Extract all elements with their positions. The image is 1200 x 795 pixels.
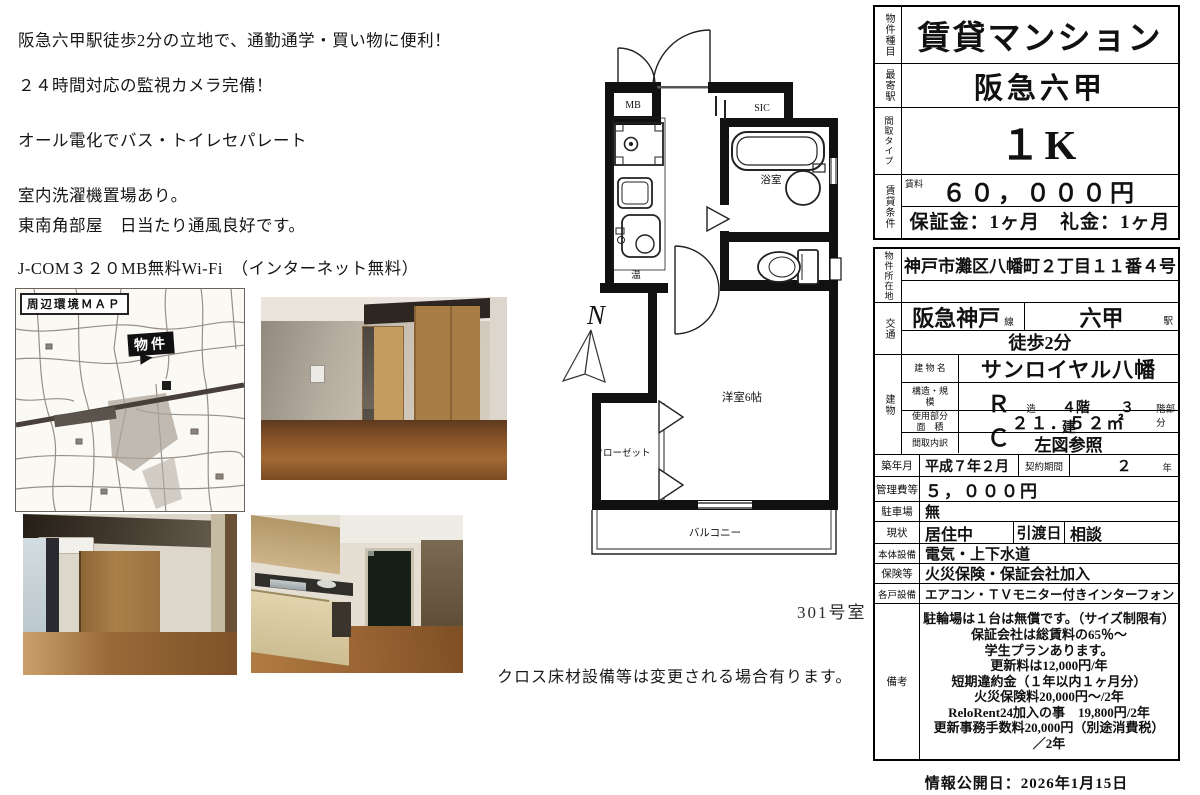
balcony-label: バルコニー bbox=[689, 527, 741, 539]
madori-value: 左図参照 bbox=[959, 433, 1178, 453]
building-label: 建物 bbox=[875, 355, 902, 454]
photo-room-closet bbox=[23, 514, 237, 675]
closet-label: クローゼット bbox=[593, 447, 650, 459]
built-value: 平成７年２月 bbox=[920, 455, 1019, 476]
layout-label: 間取タイプ bbox=[875, 108, 902, 174]
photo-window-pane bbox=[23, 538, 46, 642]
photo-frame-inner bbox=[211, 514, 224, 636]
walls bbox=[592, 82, 838, 510]
contract-value: ２ bbox=[1116, 455, 1131, 476]
structure-label: 構造・規 模 bbox=[902, 383, 959, 410]
sic-label: SIC bbox=[754, 103, 770, 114]
remarks-label: 備考 bbox=[875, 604, 920, 759]
feature-line-6: J-COM３２０MB無料Wi-Fi （インターネット無料） bbox=[18, 255, 419, 279]
feature-line-2: ２４時間対応の監視カメラ完備！ bbox=[18, 72, 273, 96]
structure-cell: ＲＣ 造 ４階建 ３ 階部分 bbox=[959, 383, 1178, 410]
property-type-value: 賃貸マンション bbox=[902, 7, 1178, 63]
north-label: N bbox=[586, 300, 607, 330]
insurance-value: 火災保険・保証会社加入 bbox=[920, 564, 1178, 583]
kitchen-fixtures bbox=[613, 118, 665, 270]
bath-folding-door bbox=[707, 207, 729, 231]
photo-undercounter-gap bbox=[332, 602, 351, 637]
north-arrow-icon bbox=[563, 330, 605, 382]
floor-plan: MB SIC 浴室 bbox=[555, 18, 885, 578]
bathtub bbox=[732, 132, 825, 205]
photo-ceiling bbox=[340, 515, 463, 543]
line-unit: 線 bbox=[1004, 314, 1014, 328]
unit-equip-value: エアコン・ＴＶモニター付きインターフォン bbox=[920, 584, 1178, 603]
photo-closet bbox=[414, 306, 480, 427]
station-cell: 六甲 駅 bbox=[1025, 303, 1178, 330]
room-door bbox=[675, 246, 719, 334]
photo-floor bbox=[23, 632, 237, 675]
base-equip-label: 本体設備 bbox=[875, 544, 920, 563]
remarks-line: 更新料は12,000円/年 bbox=[922, 658, 1176, 674]
handover-value: 相談 bbox=[1065, 522, 1178, 543]
water-heater-label: 温 bbox=[631, 270, 641, 281]
remarks-line: 学生プランあります。 bbox=[922, 643, 1176, 659]
deposit-value: 保証金：1ヶ月 礼金：1ヶ月 bbox=[902, 207, 1178, 234]
row-building: 建物 建 物 名 サンロイヤル八幡 構造・規 模 ＲＣ 造 ４階建 ３ 階部分 bbox=[875, 355, 1178, 455]
row-property-type: 物件種目 賃貸マンション bbox=[875, 7, 1178, 64]
room-number: 301号室 bbox=[797, 598, 867, 623]
terms-label: 賃貸条件 bbox=[875, 175, 902, 238]
contract-cell: ２ 年 bbox=[1070, 455, 1178, 476]
toilet bbox=[758, 250, 818, 284]
row-unit-equip: 各戸設備 エアコン・ＴＶモニター付きインターフォン bbox=[875, 584, 1178, 604]
photo-closet-seam bbox=[79, 551, 81, 641]
row-remarks: 備考 駐輪場は１台は無償です。（サイズ制限有） 保証会社は総賃料の65％〜 学生… bbox=[875, 604, 1178, 759]
rent-label: 賃料 bbox=[905, 177, 923, 190]
photo-room-door bbox=[261, 297, 507, 480]
photo-door-knob bbox=[368, 551, 373, 556]
mgmt-label: 管理費等 bbox=[875, 477, 920, 501]
feature-line-4: 室内洗濯機置場あり。 bbox=[18, 182, 188, 206]
rent-value: ６０，０００円 bbox=[902, 175, 1178, 206]
row-parking: 駐車場 無 bbox=[875, 502, 1178, 522]
contract-unit: 年 bbox=[1162, 460, 1172, 474]
map-shaded-block-2 bbox=[142, 457, 182, 509]
handover-label: 引渡日 bbox=[1014, 522, 1065, 543]
parking-label: 駐車場 bbox=[875, 502, 920, 521]
madori-label: 間取内訳 bbox=[902, 433, 959, 453]
feature-line-5: 東南角部屋 日当たり通風良好です。 bbox=[18, 212, 305, 236]
photo-intercom bbox=[310, 365, 325, 383]
windows bbox=[698, 158, 841, 509]
publish-date: 情報公開日：2026年1月15日 bbox=[873, 772, 1180, 793]
remarks-line: ReloRent24加入の事 19,800円/2年 bbox=[922, 705, 1176, 721]
address-value: 神戸市灘区八幡町２丁目１１番４号 bbox=[902, 249, 1178, 280]
line-name: 阪急神戸 bbox=[912, 301, 1000, 333]
remarks-line: 火災保険料20,000円〜/2年 bbox=[922, 689, 1176, 705]
mgmt-value: ５，０００円 bbox=[920, 477, 1178, 501]
row-built: 築年月 平成７年２月 契約期間 ２ 年 bbox=[875, 455, 1178, 477]
photo-door-glass-left bbox=[363, 327, 374, 409]
map-title: 周辺環境ＭＡＰ bbox=[20, 293, 129, 315]
remarks-line: ／2年 bbox=[922, 736, 1176, 752]
area-value: ２１．５２㎡ bbox=[959, 411, 1178, 432]
remarks-line: 短期違約金（１年以内１ヶ月分） bbox=[922, 674, 1176, 690]
feature-line-1: 阪急六甲駅徒歩2分の立地で、通勤通学・買い物に便利！ bbox=[18, 27, 451, 51]
unit-equip-label: 各戸設備 bbox=[875, 584, 920, 603]
spec-table-top: 物件種目 賃貸マンション 最寄駅 阪急六甲 間取タイプ １K 賃貸条件 賃料 ６… bbox=[873, 5, 1180, 240]
row-insurance: 保険等 火災保険・保証会社加入 bbox=[875, 564, 1178, 584]
sic-sliding-door bbox=[716, 96, 725, 120]
base-equip-value: 電気・上下水道 bbox=[920, 544, 1178, 563]
walk-value: 徒歩2分 bbox=[902, 331, 1178, 353]
station-value: 阪急六甲 bbox=[902, 64, 1178, 107]
layout-value: １K bbox=[902, 108, 1178, 174]
photo-entrance-door bbox=[365, 548, 414, 633]
line-value: 阪急神戸 線 bbox=[902, 303, 1025, 330]
closet-door bbox=[659, 401, 683, 501]
row-transport: 交通 阪急神戸 線 六甲 駅 徒歩2分 bbox=[875, 303, 1178, 355]
parking-value: 無 bbox=[920, 502, 1178, 521]
mb-label: MB bbox=[625, 100, 641, 111]
map-streets bbox=[16, 289, 245, 512]
photo-door bbox=[362, 326, 404, 423]
row-station: 最寄駅 阪急六甲 bbox=[875, 64, 1178, 108]
status-label: 現状 bbox=[875, 522, 920, 543]
change-note: クロス床材設備等は変更される場合有ります。 bbox=[497, 663, 852, 687]
entrance-door-arcs bbox=[618, 30, 710, 87]
map-property-marker: 物件 bbox=[127, 331, 174, 356]
photo-floor bbox=[261, 420, 507, 480]
row-mgmt: 管理費等 ５，０００円 bbox=[875, 477, 1178, 502]
bath-label: 浴室 bbox=[761, 173, 782, 186]
photo-kitchen bbox=[251, 515, 463, 673]
row-base-equip: 本体設備 電気・上下水道 bbox=[875, 544, 1178, 564]
entrance-threshold bbox=[657, 86, 708, 89]
remarks-line: 駐輪場は１台は無償です。（サイズ制限有） bbox=[922, 611, 1176, 627]
station-name: 六甲 bbox=[1079, 301, 1123, 333]
map-station-platform bbox=[53, 407, 116, 428]
contract-label: 契約期間 bbox=[1019, 455, 1070, 476]
row-layout: 間取タイプ １K bbox=[875, 108, 1178, 175]
map-property-dot bbox=[162, 381, 171, 390]
row-status: 現状 居住中 引渡日 相談 bbox=[875, 522, 1178, 544]
address-label: 物件所在地 bbox=[875, 249, 902, 302]
insurance-label: 保険等 bbox=[875, 564, 920, 583]
photo-closet bbox=[79, 551, 160, 641]
spec-table-main: 物件所在地 神戸市灘区八幡町２丁目１１番４号 交通 阪急神戸 線 六甲 bbox=[873, 247, 1180, 761]
feature-line-3: オール電化でバス・トイレセパレート bbox=[18, 127, 307, 151]
transport-label: 交通 bbox=[875, 303, 902, 354]
photo-wall-right bbox=[490, 297, 507, 432]
status-value: 居住中 bbox=[920, 522, 1014, 543]
station-label: 最寄駅 bbox=[875, 64, 902, 107]
flyer-page: 阪急六甲駅徒歩2分の立地で、通勤通学・買い物に便利！ ２４時間対応の監視カメラ完… bbox=[0, 0, 1200, 795]
property-type-label: 物件種目 bbox=[875, 7, 902, 63]
address-empty-row bbox=[902, 281, 1178, 300]
building-name-value: サンロイヤル八幡 bbox=[959, 355, 1178, 382]
room-label: 洋室6帖 bbox=[722, 390, 762, 404]
neighborhood-map: 周辺環境ＭＡＰ 物件 bbox=[15, 288, 245, 512]
area-label: 使用部分 面 積 bbox=[902, 411, 959, 432]
station-unit: 駅 bbox=[1163, 313, 1173, 327]
built-label: 築年月 bbox=[875, 455, 920, 476]
row-terms: 賃貸条件 賃料 ６０，０００円 保証金：1ヶ月 礼金：1ヶ月 bbox=[875, 175, 1178, 238]
building-name-label: 建 物 名 bbox=[902, 355, 959, 382]
remarks-line: 保証会社は総賃料の65％〜 bbox=[922, 627, 1176, 643]
row-address: 物件所在地 神戸市灘区八幡町２丁目１１番４号 bbox=[875, 249, 1178, 303]
photo-upper-cabinet bbox=[251, 515, 340, 575]
remarks-line: 更新事務手数料20,000円（別途消費税） bbox=[922, 720, 1176, 736]
